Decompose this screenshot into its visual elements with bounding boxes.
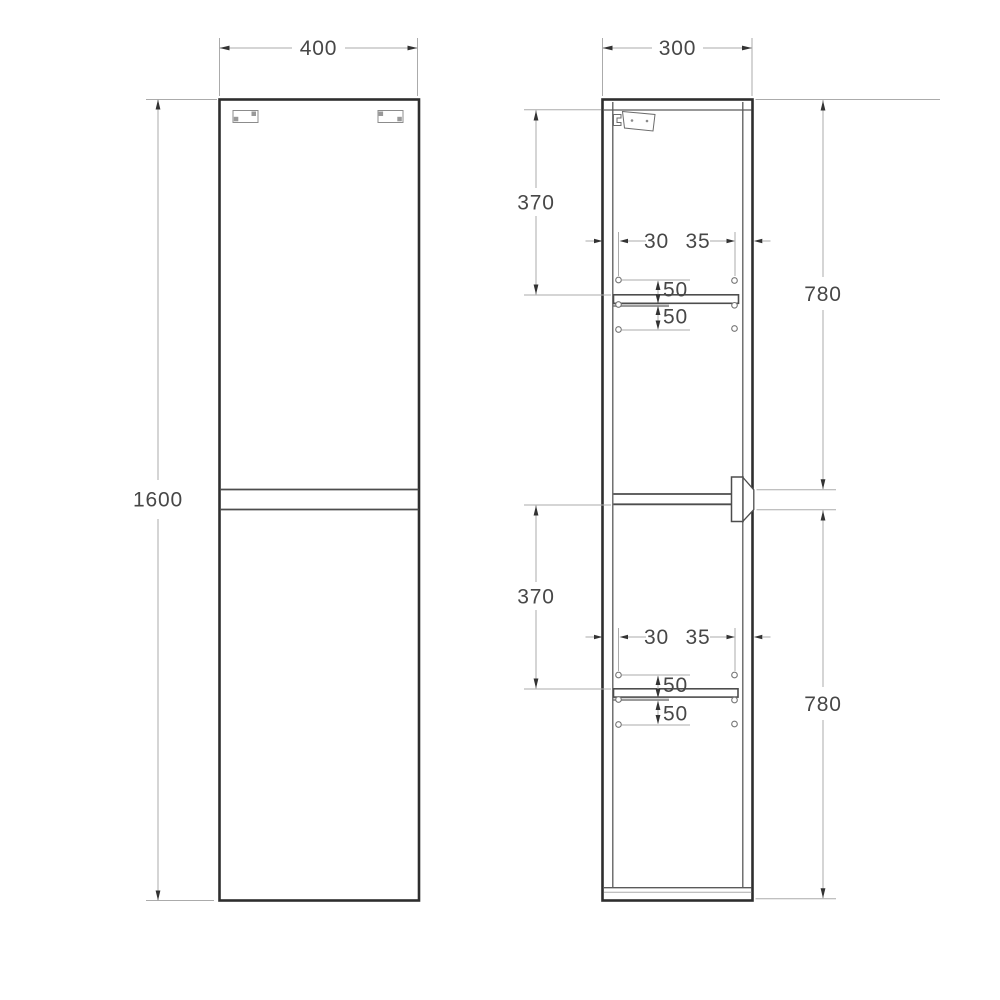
dim-section-height-label: 780 <box>804 283 841 306</box>
wall-bracket-right <box>378 111 403 123</box>
arrowhead-left <box>603 46 613 51</box>
arrowhead-down <box>534 679 539 689</box>
shelf-pin-hole <box>616 697 622 703</box>
height-dimension: 1600 <box>133 100 217 901</box>
arrowhead-up <box>821 101 826 111</box>
arrowhead-up <box>534 111 539 121</box>
arrowhead-right <box>408 46 418 51</box>
dim-height-label: 1600 <box>133 489 183 512</box>
dim-pitch-below-label: 50 <box>663 306 688 329</box>
technical-drawing-cabinet: 400 1600 300 <box>0 0 1000 1000</box>
front-view: 400 1600 <box>133 37 419 901</box>
arrowhead-down <box>534 285 539 295</box>
dim-pitch-above-label: 50 <box>663 279 688 302</box>
wall-bracket-left <box>233 111 258 123</box>
drawing-svg: 400 1600 300 <box>0 0 1000 1000</box>
arrowhead-left <box>220 46 230 51</box>
section-height-dimension-upper: 780 <box>756 100 941 490</box>
shelf-pin-hole <box>732 303 738 309</box>
depth-dimension: 300 <box>603 37 753 96</box>
arrowhead-down <box>156 891 161 901</box>
top-offset-dimension-upper: 370 <box>517 110 611 295</box>
dim-top-offset-label: 370 <box>517 586 554 609</box>
side-view: 300 <box>517 37 940 901</box>
front-view-outline <box>220 100 420 901</box>
arrowhead-down <box>821 479 826 489</box>
arrowhead-up <box>534 506 539 516</box>
dim-pitch-above-label: 50 <box>663 674 688 697</box>
arrowhead-left <box>754 239 763 243</box>
side-view-outline <box>603 100 753 901</box>
dim-pitch-below-label: 50 <box>663 703 688 726</box>
hanger-plate <box>623 112 656 132</box>
hanger-screw <box>631 119 634 122</box>
handle-body <box>732 477 744 522</box>
dim-top-offset-label: 370 <box>517 192 554 215</box>
dim-depth-label: 300 <box>659 37 696 60</box>
top-offset-dimension-lower: 370 <box>517 505 611 689</box>
dim-hole-back-label: 30 <box>644 230 669 253</box>
arrowhead-right <box>742 46 752 51</box>
shelf-pin-hole <box>732 697 738 703</box>
arrowhead-down <box>821 888 826 898</box>
dim-hole-front-label: 35 <box>686 626 711 649</box>
shelf-pin-hole <box>732 278 738 284</box>
shelf-pin-hole <box>732 721 738 727</box>
shelf-pin-hole <box>616 302 622 308</box>
section-height-dimension-lower: 780 <box>756 510 842 899</box>
arrowhead-up <box>156 100 161 110</box>
dim-hole-front-label: 35 <box>686 230 711 253</box>
shelf-pin-hole <box>616 722 622 728</box>
hanger-screw <box>646 120 649 123</box>
dim-width-label: 400 <box>300 37 337 60</box>
shelf-pin-hole <box>616 672 622 678</box>
shelf-pin-hole <box>616 277 622 283</box>
dim-section-height-label: 780 <box>804 693 841 716</box>
width-dimension: 400 <box>220 37 418 96</box>
shelf-pin-hole <box>732 672 738 678</box>
arrowhead-left <box>754 635 763 639</box>
shelf-pin-hole <box>616 327 622 333</box>
shelf-pin-hole <box>732 326 738 332</box>
arrowhead-up <box>821 511 826 521</box>
dim-hole-back-label: 30 <box>644 626 669 649</box>
